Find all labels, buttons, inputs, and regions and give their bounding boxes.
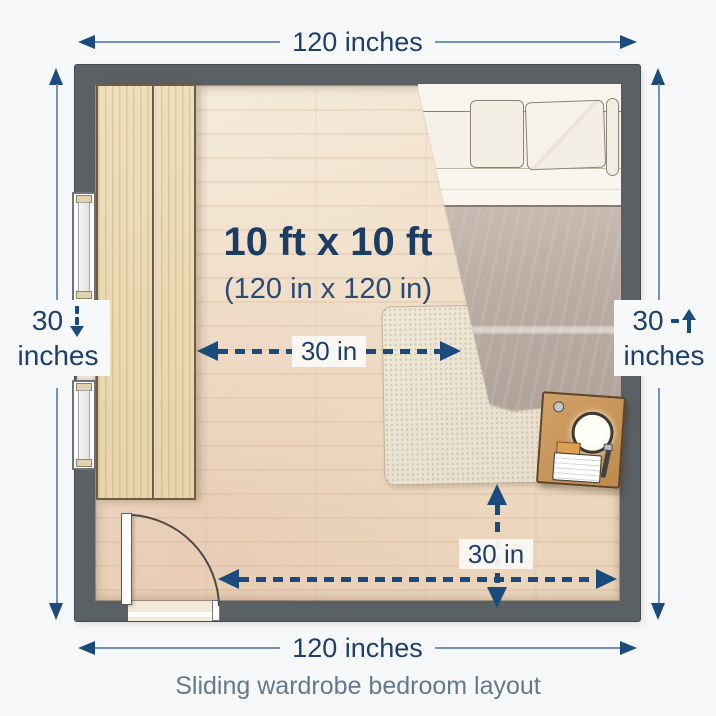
- clearance-bottom-arrow: [218, 569, 617, 589]
- arrow-up-icon: [49, 68, 63, 85]
- door-threshold: [128, 612, 218, 617]
- arrow-right-icon: [596, 569, 617, 589]
- arrow-right-icon: [620, 35, 637, 49]
- right-dimension-label: 30 inches: [614, 300, 714, 376]
- arrow-left-icon: [218, 569, 239, 589]
- arrow-left-icon: [197, 341, 218, 361]
- knob-icon: [553, 401, 565, 413]
- top-dimension: 120 inches: [78, 29, 637, 55]
- arrow-left-icon: [78, 35, 95, 49]
- dashed-line: [366, 349, 440, 354]
- window-pane: [78, 202, 90, 292]
- right-dimension-unit: inches: [624, 338, 705, 373]
- pen: [601, 450, 612, 478]
- room-size-secondary: (120 in x 120 in): [163, 273, 493, 306]
- left-dimension-value: 30: [32, 303, 63, 338]
- arrow-down-icon: [49, 603, 63, 620]
- pillow: [470, 100, 524, 168]
- dashed-down-arrow-icon: [70, 304, 84, 337]
- pillow: [525, 100, 606, 171]
- clearance-horizontal: 30 in: [197, 339, 461, 363]
- top-dimension-label: 120 inches: [280, 27, 435, 58]
- right-dimension-value: 30: [632, 303, 663, 338]
- window-upper: [72, 192, 96, 302]
- door-stop: [212, 600, 220, 621]
- arrow-down-icon: [651, 603, 665, 620]
- wardrobe-divider: [152, 86, 154, 498]
- notebook: [552, 452, 602, 483]
- dashed-line: [218, 349, 292, 354]
- arrow-right-icon: [440, 341, 461, 361]
- clearance-vertical-label: 30 in: [455, 539, 537, 570]
- dimension-line: [95, 647, 280, 649]
- room-size-label: 10 ft x 10 ft (120 in x 120 in): [163, 220, 493, 306]
- diagram-caption: Sliding wardrobe bedroom layout: [0, 672, 716, 701]
- left-dimension-unit: inches: [18, 338, 99, 373]
- window-lower: [72, 380, 96, 470]
- door-opening: [128, 601, 218, 621]
- room-size-primary: 10 ft x 10 ft: [163, 220, 493, 265]
- arrow-up-icon: [487, 484, 507, 505]
- dimension-line: [435, 41, 620, 43]
- bottom-dimension-label: 120 inches: [280, 633, 435, 664]
- dimension-line: [658, 84, 660, 302]
- sheet-fold: [412, 168, 621, 208]
- arrow-up-icon: [651, 68, 665, 85]
- dimension-line: [435, 647, 620, 649]
- bottom-dimension: 120 inches: [78, 635, 637, 661]
- arrow-left-icon: [78, 641, 95, 655]
- bolster-pillow: [606, 98, 619, 176]
- floor-plan-canvas: 120 inches 30 inches 30 inches: [0, 0, 716, 716]
- arrow-right-icon: [620, 641, 637, 655]
- door-leaf: [121, 513, 132, 605]
- dimension-line: [56, 388, 58, 604]
- nightstand: [536, 391, 626, 489]
- dashed-line: [239, 577, 596, 582]
- left-dimension-label: 30 inches: [6, 300, 110, 376]
- arrow-down-icon: [487, 587, 507, 608]
- clearance-horizontal-label: 30 in: [292, 336, 366, 367]
- up-arrow-icon: [671, 309, 696, 333]
- dimension-line: [56, 84, 58, 302]
- dimension-line: [658, 388, 660, 604]
- dimension-line: [95, 41, 280, 43]
- window-pane: [78, 390, 90, 460]
